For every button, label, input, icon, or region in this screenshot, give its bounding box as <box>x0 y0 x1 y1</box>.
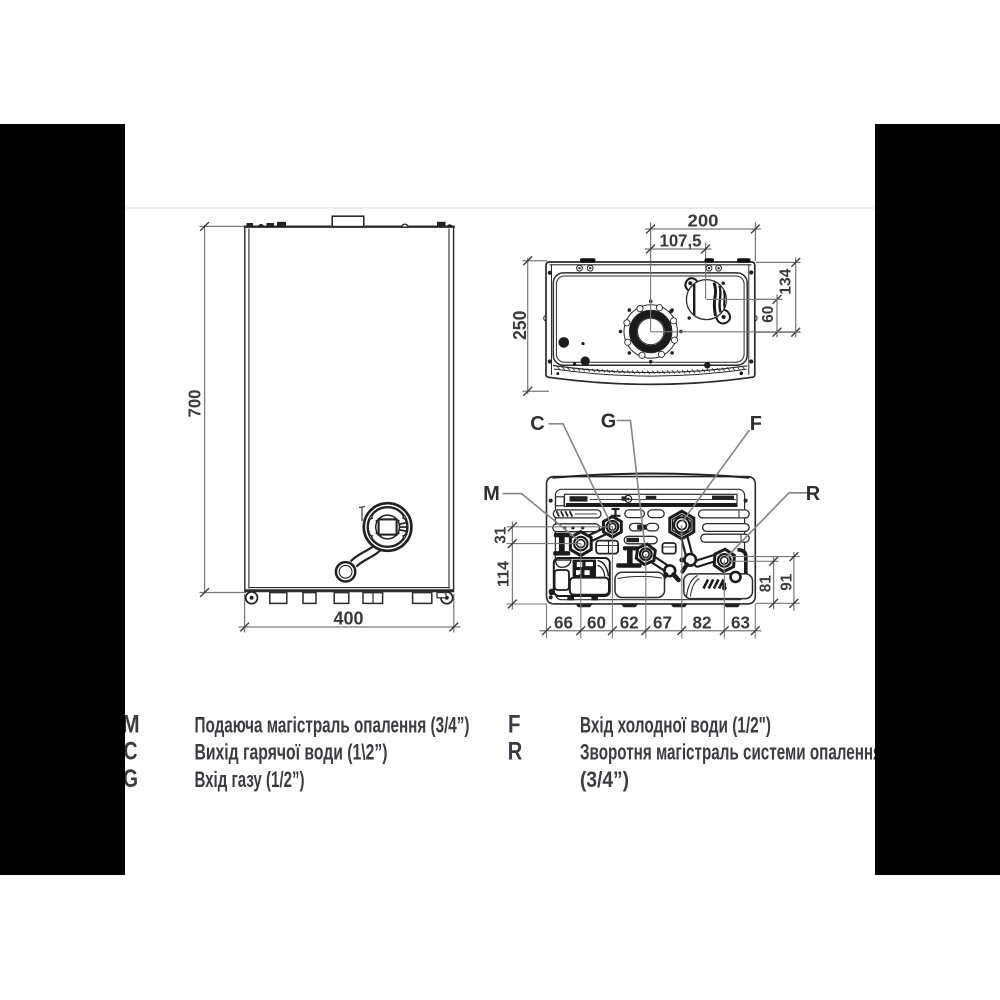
svg-text:31: 31 <box>492 527 509 544</box>
svg-text:C: C <box>124 738 138 766</box>
svg-text:114: 114 <box>496 561 513 587</box>
svg-text:82: 82 <box>693 612 712 632</box>
svg-text:250: 250 <box>510 311 530 341</box>
svg-text:C: C <box>530 413 544 435</box>
svg-text:Вхід холодної води (1/2"): Вхід холодної води (1/2") <box>580 712 771 737</box>
svg-text:G: G <box>601 411 617 433</box>
svg-text:R: R <box>508 738 523 766</box>
svg-text:67: 67 <box>653 612 672 632</box>
svg-text:F: F <box>750 413 762 435</box>
svg-text:200: 200 <box>688 211 719 231</box>
svg-text:Вихід гарячої води (1\2”): Вихід гарячої води (1\2”) <box>195 740 388 765</box>
svg-text:60: 60 <box>760 306 777 323</box>
svg-text:134: 134 <box>777 269 794 295</box>
svg-text:66: 66 <box>554 612 573 632</box>
svg-text:63: 63 <box>731 612 750 632</box>
svg-text:91: 91 <box>779 574 796 591</box>
svg-text:F: F <box>508 710 521 738</box>
svg-text:107,5: 107,5 <box>660 230 702 250</box>
svg-text:Вхід газу (1/2”): Вхід газу (1/2”) <box>195 767 305 792</box>
svg-text:Подаюча магістраль опалення (3: Подаюча магістраль опалення (3/4”) <box>195 712 470 737</box>
svg-text:M: M <box>483 483 500 505</box>
svg-text:62: 62 <box>620 612 639 632</box>
svg-text:R: R <box>806 483 821 505</box>
svg-text:60: 60 <box>587 612 606 632</box>
svg-text:400: 400 <box>334 609 364 629</box>
svg-text:81: 81 <box>758 575 775 592</box>
svg-text:G: G <box>123 765 138 793</box>
svg-text:700: 700 <box>184 389 204 417</box>
svg-text:(3/4”): (3/4”) <box>580 767 629 792</box>
svg-text:Зворотня магістраль системи оп: Зворотня магістраль системи опалення <box>580 740 882 765</box>
